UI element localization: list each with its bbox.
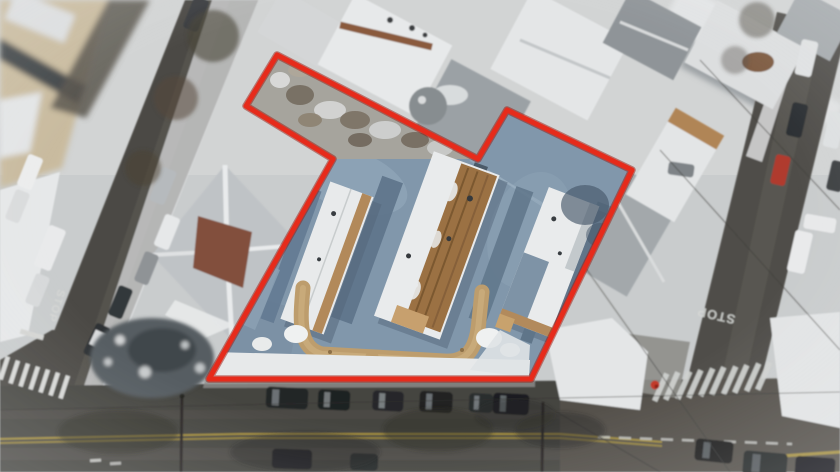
vignette-overlay <box>0 0 840 472</box>
aerial-photo: STOP STOP <box>0 0 840 472</box>
aerial-photo-canvas: STOP STOP <box>0 0 840 472</box>
